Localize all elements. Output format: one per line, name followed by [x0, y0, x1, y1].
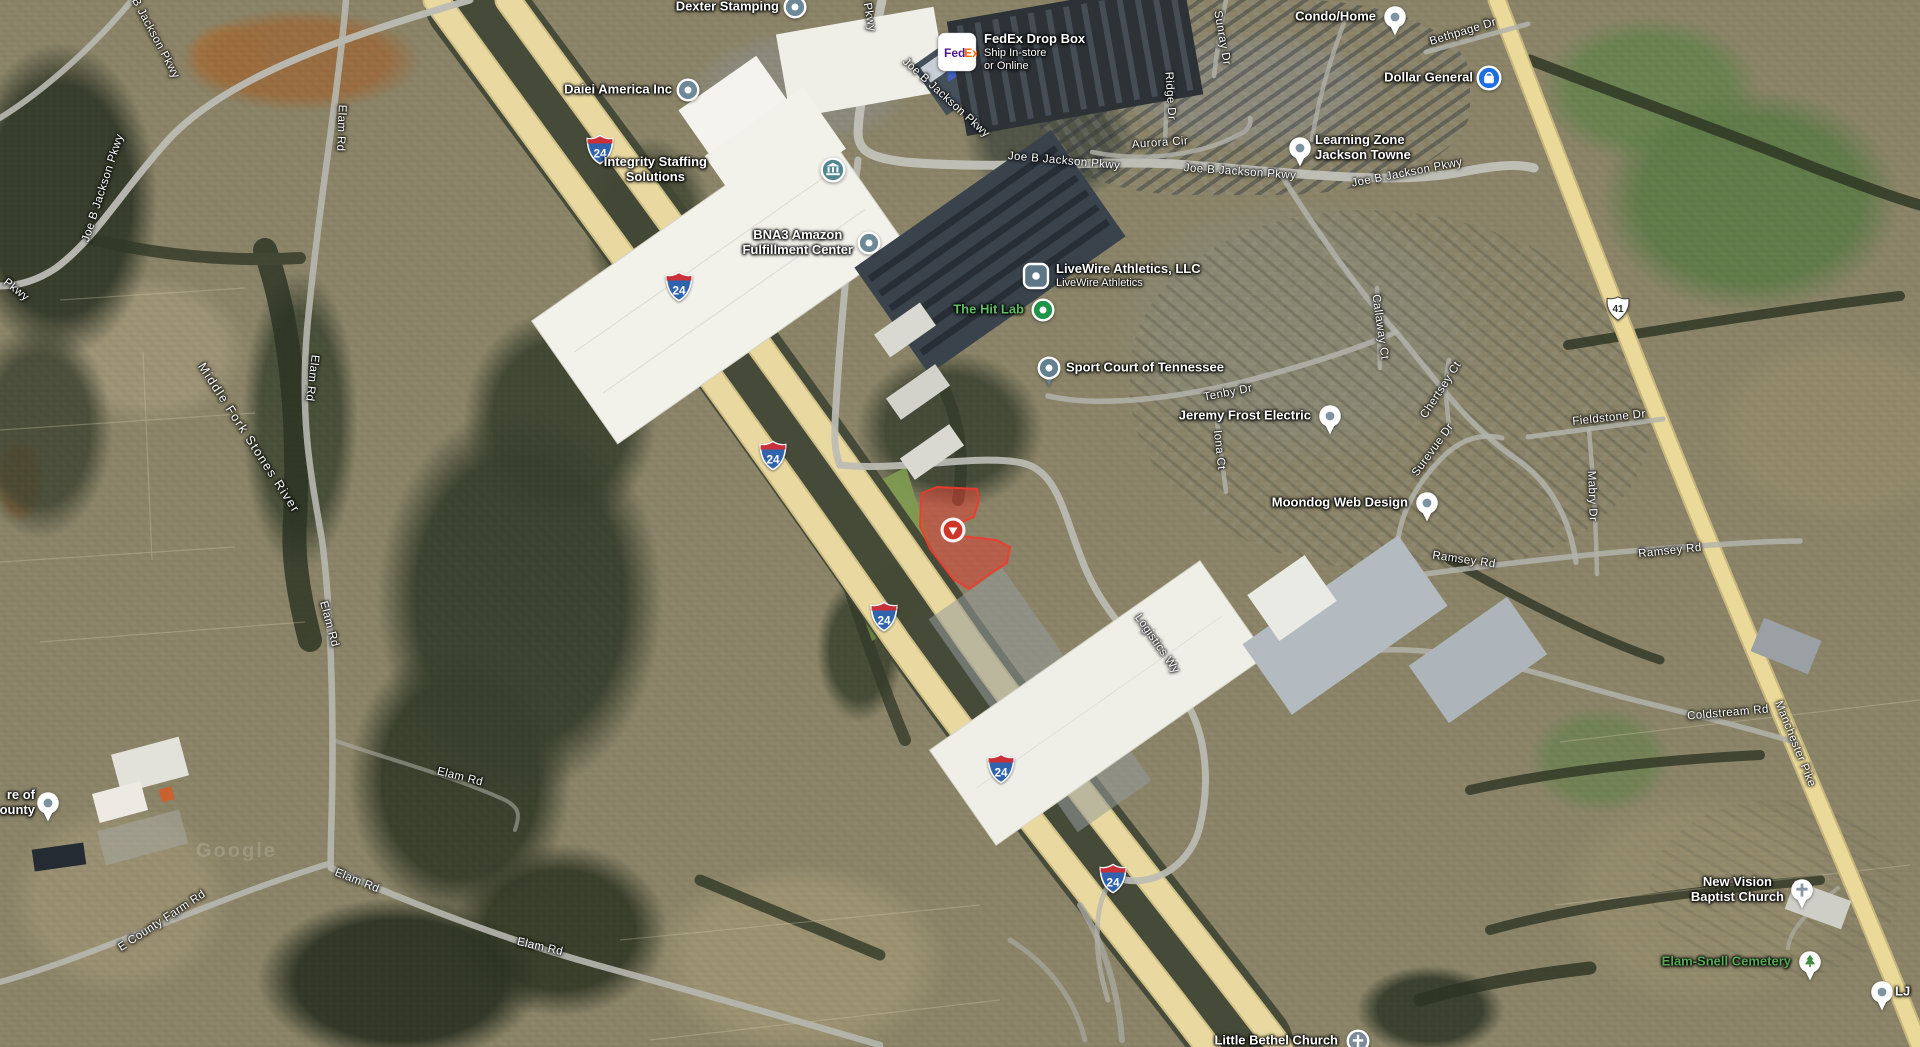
place-label: BNA3 AmazonFulfillment Center: [742, 228, 853, 258]
place-label: Dollar General: [1384, 71, 1473, 86]
place-label: The Hit Lab: [953, 303, 1024, 318]
place-label: Sport Court of Tennessee: [1066, 361, 1224, 376]
place-label: Integrity StaffingSolutions: [604, 155, 707, 185]
drop-white-icon[interactable]: [1382, 4, 1408, 42]
svg-text:Ex: Ex: [964, 46, 977, 60]
drop-white-icon[interactable]: [1287, 135, 1313, 173]
place-label: LJ: [1895, 985, 1910, 1000]
place-label: Condo/Home: [1295, 10, 1376, 25]
place-label: Jeremy Frost Electric: [1179, 409, 1311, 424]
place-label: Little Bethel Church: [1214, 1034, 1338, 1047]
square-dot-icon[interactable]: [1022, 262, 1050, 295]
bag-icon[interactable]: [1475, 64, 1503, 97]
place-label: Daiei America Inc: [564, 83, 672, 98]
cross-pin-white-icon[interactable]: [1789, 877, 1815, 915]
bank-icon[interactable]: [819, 156, 847, 189]
place-label: Dexter Stamping: [676, 0, 779, 14]
place-label: New VisionBaptist Church: [1691, 875, 1784, 905]
place-label: re ofounty: [0, 788, 35, 818]
drop-white-icon[interactable]: [35, 790, 61, 828]
green-dot-icon[interactable]: [1030, 297, 1056, 328]
place-label: Learning ZoneJackson Towne: [1315, 133, 1411, 163]
place-label: Elam-Snell Cemetery: [1662, 955, 1791, 970]
cross-circle-gray-icon[interactable]: [1345, 1028, 1371, 1047]
circle-dot-icon[interactable]: [782, 0, 808, 25]
tree-pin-icon[interactable]: [1797, 949, 1823, 987]
place-label: LiveWire Athletics, LLCLiveWire Athletic…: [1056, 262, 1201, 290]
place-label: FedEx Drop BoxShip In-storeor Online: [984, 32, 1085, 72]
pin-dot-icon[interactable]: [1036, 355, 1062, 393]
map-canvas[interactable]: Google 24242424242441 Joe B Jackson Pkwy…: [0, 0, 1920, 1047]
circle-dot-icon[interactable]: [856, 230, 882, 261]
drop-white-icon[interactable]: [1317, 403, 1343, 441]
place-label: Moondog Web Design: [1272, 496, 1408, 511]
fedex-icon[interactable]: FedEx: [937, 32, 977, 77]
svg-text:Fed: Fed: [944, 46, 965, 60]
circle-dot-icon[interactable]: [675, 77, 701, 108]
drop-white-icon[interactable]: [1869, 979, 1895, 1017]
places-layer: Dexter StampingFedExFedEx Drop BoxShip I…: [0, 0, 1920, 1047]
drop-white-icon[interactable]: [1414, 490, 1440, 528]
